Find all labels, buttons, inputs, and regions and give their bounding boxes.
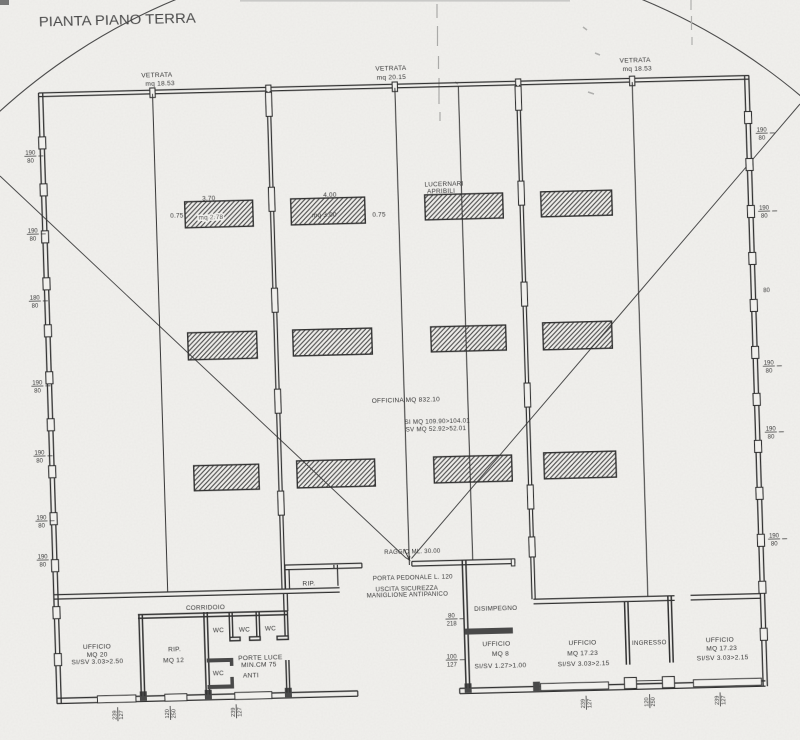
svg-text:0.75: 0.75 — [372, 211, 386, 218]
svg-text:218: 218 — [447, 621, 458, 627]
svg-text:SI/SV 3.03>2.15: SI/SV 3.03>2.15 — [558, 660, 610, 668]
svg-text:mq 20.15: mq 20.15 — [377, 74, 407, 82]
svg-text:MQ 12: MQ 12 — [163, 657, 184, 665]
svg-text:DISIMPEGNO: DISIMPEGNO — [474, 605, 517, 613]
svg-text:80: 80 — [771, 541, 779, 547]
svg-text:VETRATA: VETRATA — [619, 57, 651, 65]
svg-text:80: 80 — [768, 434, 776, 440]
svg-text:INGRESSO: INGRESSO — [632, 639, 667, 647]
svg-text:SI/SV 3.03>2.15: SI/SV 3.03>2.15 — [697, 654, 749, 662]
svg-text:0.75: 0.75 — [170, 212, 184, 219]
svg-text:80: 80 — [34, 388, 42, 394]
svg-text:80: 80 — [761, 214, 769, 220]
svg-text:WC: WC — [213, 670, 224, 677]
svg-text:MIN.CM 75: MIN.CM 75 — [241, 661, 277, 669]
svg-text:80: 80 — [30, 237, 38, 243]
svg-text:CORRIDOIO: CORRIDOIO — [186, 604, 225, 612]
svg-text:80: 80 — [758, 136, 766, 142]
svg-text:mq 18.53: mq 18.53 — [145, 80, 175, 88]
svg-text:80: 80 — [39, 562, 47, 568]
svg-text:80: 80 — [763, 288, 771, 294]
svg-text:SI/SV 1.27>1.00: SI/SV 1.27>1.00 — [474, 662, 526, 670]
svg-text:ANTI: ANTI — [243, 672, 259, 679]
svg-text:UFFICIO: UFFICIO — [83, 643, 111, 651]
svg-text:SI/SV 3.03>2.50: SI/SV 3.03>2.50 — [71, 658, 123, 666]
svg-text:RIP.: RIP. — [168, 646, 181, 653]
svg-text:80: 80 — [38, 523, 46, 529]
svg-text:127: 127 — [237, 707, 243, 716]
svg-text:WC: WC — [265, 625, 276, 632]
svg-text:80: 80 — [32, 304, 40, 310]
svg-text:MQ 8: MQ 8 — [492, 651, 509, 658]
svg-text:MQ 17.23: MQ 17.23 — [706, 645, 737, 653]
svg-text:mq 18.53: mq 18.53 — [622, 65, 652, 73]
svg-text:APRIBILI: APRIBILI — [427, 188, 455, 196]
svg-text:250: 250 — [171, 709, 177, 718]
svg-text:250: 250 — [651, 697, 657, 706]
svg-text:WC: WC — [213, 627, 224, 634]
svg-text:127: 127 — [119, 710, 125, 719]
svg-text:mq 2.78: mq 2.78 — [198, 214, 223, 222]
svg-text:UFFICIO: UFFICIO — [706, 637, 734, 645]
svg-text:VETRATA: VETRATA — [141, 71, 173, 79]
svg-text:WC: WC — [239, 626, 250, 633]
svg-text:RIP.: RIP. — [302, 580, 315, 587]
svg-text:4.00: 4.00 — [323, 191, 337, 198]
svg-text:MQ 17.23: MQ 17.23 — [567, 650, 598, 658]
svg-text:127: 127 — [721, 695, 727, 704]
svg-text:80: 80 — [766, 368, 774, 374]
svg-text:127: 127 — [587, 699, 593, 708]
svg-text:127: 127 — [447, 662, 458, 668]
svg-text:UFFICIO: UFFICIO — [568, 639, 596, 647]
svg-text:SV MQ 52.92>52.01: SV MQ 52.92>52.01 — [406, 425, 467, 433]
svg-text:3.70: 3.70 — [202, 195, 216, 202]
svg-text:80: 80 — [36, 458, 44, 464]
svg-text:80: 80 — [27, 159, 35, 165]
svg-text:mq 3.00: mq 3.00 — [312, 212, 337, 220]
svg-text:VETRATA: VETRATA — [375, 65, 407, 73]
svg-text:UFFICIO: UFFICIO — [482, 641, 510, 649]
